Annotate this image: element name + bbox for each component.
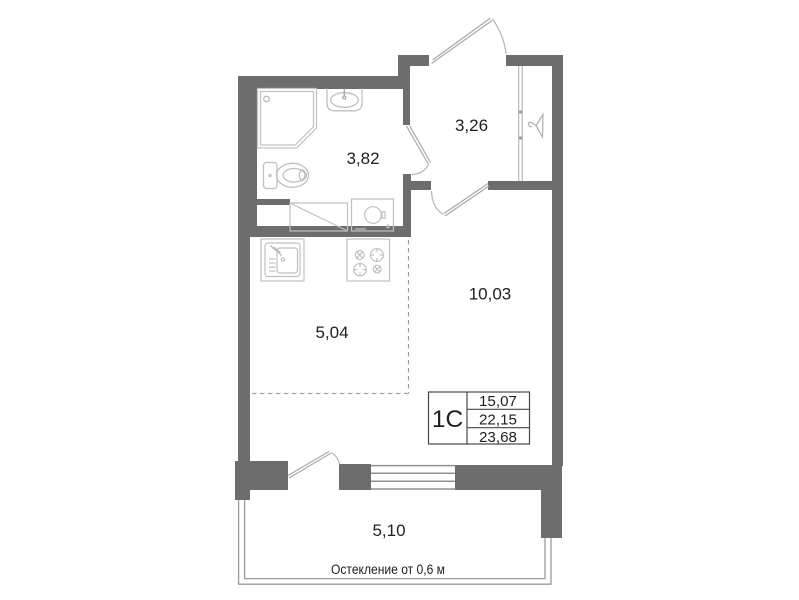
svg-text:Остекление от 0,6 м: Остекление от 0,6 м [331,562,445,578]
svg-text:1C: 1C [432,406,463,433]
svg-text:10,03: 10,03 [469,285,512,304]
svg-text:23,68: 23,68 [479,429,517,446]
svg-text:5,10: 5,10 [372,521,405,540]
svg-text:15,07: 15,07 [479,393,517,410]
svg-text:5,04: 5,04 [315,323,348,342]
svg-text:3,82: 3,82 [346,149,379,168]
svg-text:3,26: 3,26 [455,116,488,135]
svg-text:22,15: 22,15 [479,412,517,429]
